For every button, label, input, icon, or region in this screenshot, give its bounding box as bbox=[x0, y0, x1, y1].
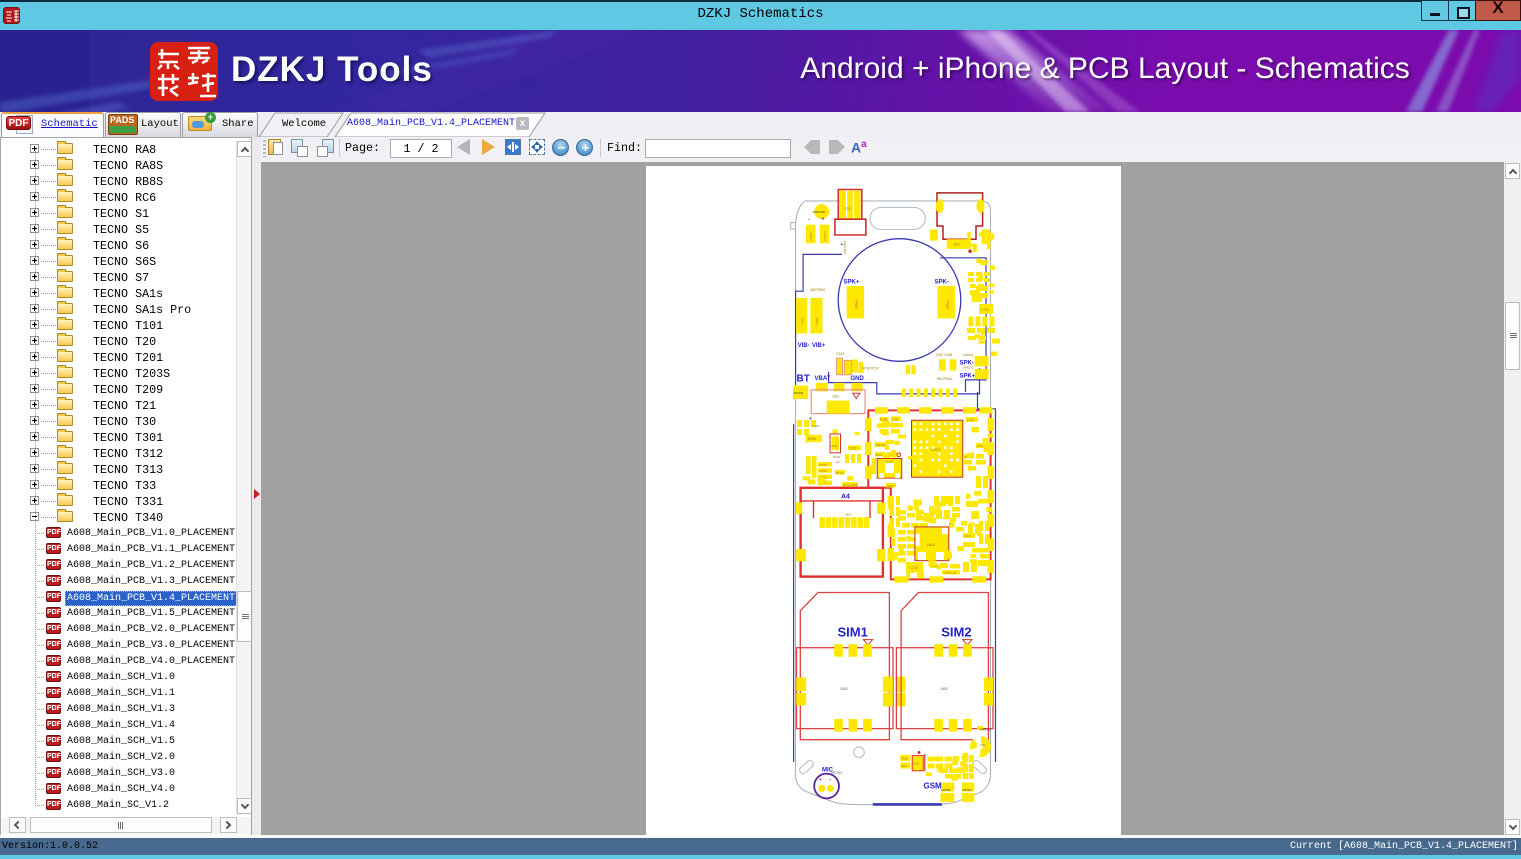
svg-text:MARK502: MARK502 bbox=[980, 729, 992, 732]
svg-text:ANT100: ANT100 bbox=[962, 788, 972, 792]
svg-text:-: - bbox=[830, 777, 832, 783]
svg-text:SIM1: SIM1 bbox=[838, 625, 868, 640]
svg-text:LA: LA bbox=[836, 460, 840, 464]
svg-text:SPK+: SPK+ bbox=[854, 298, 859, 309]
svg-text:-: - bbox=[808, 217, 810, 223]
svg-text:TP302: TP302 bbox=[801, 317, 805, 326]
svg-text:ANT403: ANT403 bbox=[794, 391, 804, 395]
svg-text:SPK+: SPK+ bbox=[960, 374, 976, 380]
svg-text:TP703+: TP703+ bbox=[823, 230, 827, 241]
svg-text:R301: R301 bbox=[833, 455, 841, 459]
svg-text:SPK502: SPK502 bbox=[963, 353, 974, 357]
svg-text:U101: U101 bbox=[886, 459, 894, 463]
svg-text:MIC1501: MIC1501 bbox=[832, 771, 843, 775]
svg-text:SPK+: SPK+ bbox=[844, 279, 860, 285]
svg-text:GND: GND bbox=[851, 376, 865, 382]
svg-text:C807R802: C807R802 bbox=[843, 240, 847, 254]
svg-text:MARKTOP: MARKTOP bbox=[813, 210, 826, 214]
svg-text:BT: BT bbox=[797, 374, 810, 385]
svg-text:J500: J500 bbox=[980, 743, 986, 747]
svg-text:VIB-: VIB- bbox=[798, 343, 810, 349]
svg-text:C332: C332 bbox=[891, 418, 899, 422]
svg-text:C319: C319 bbox=[836, 352, 844, 356]
svg-text:C401: C401 bbox=[812, 424, 820, 428]
svg-text:SPK501: SPK501 bbox=[963, 366, 974, 370]
svg-text:U401: U401 bbox=[927, 543, 935, 547]
svg-text:SIM2: SIM2 bbox=[941, 625, 971, 640]
svg-text:GSM: GSM bbox=[924, 782, 943, 791]
svg-text:IT01: IT01 bbox=[977, 444, 983, 448]
svg-text:C604: C604 bbox=[876, 453, 883, 457]
svg-text:A4: A4 bbox=[841, 494, 850, 501]
svg-text:C317: C317 bbox=[964, 534, 972, 538]
svg-text:R738 R737: R738 R737 bbox=[863, 367, 879, 371]
svg-text:J702: J702 bbox=[844, 207, 851, 211]
svg-text:R705: R705 bbox=[820, 469, 828, 473]
svg-text:R601: R601 bbox=[887, 484, 895, 488]
svg-text:+: + bbox=[819, 777, 822, 783]
svg-text:J401: J401 bbox=[845, 513, 852, 517]
svg-text:ANT102: ANT102 bbox=[941, 788, 951, 792]
svg-text:+: + bbox=[822, 217, 825, 223]
svg-text:C704: C704 bbox=[981, 308, 989, 312]
svg-text:J201: J201 bbox=[832, 395, 839, 399]
svg-text:VIB+: VIB+ bbox=[812, 343, 826, 349]
svg-text:E401: E401 bbox=[914, 762, 921, 766]
svg-text:R308: R308 bbox=[808, 437, 816, 441]
svg-text:TP704-: TP704- bbox=[809, 231, 813, 241]
svg-text:TP301: TP301 bbox=[815, 317, 819, 326]
svg-text:C807R802: C807R802 bbox=[810, 288, 825, 292]
svg-text:R706: R706 bbox=[820, 463, 828, 467]
svg-text:J701: J701 bbox=[953, 243, 960, 247]
svg-text:R727: R727 bbox=[836, 471, 844, 475]
svg-text:E407: E407 bbox=[901, 764, 908, 768]
svg-text:VBAT: VBAT bbox=[815, 376, 831, 382]
svg-text:C302: C302 bbox=[849, 446, 857, 450]
svg-text:U302: U302 bbox=[831, 444, 839, 448]
svg-text:C567 C508: C567 C508 bbox=[936, 353, 952, 357]
svg-text:SPK-: SPK- bbox=[945, 299, 950, 309]
svg-text:SPK-: SPK- bbox=[935, 279, 949, 285]
svg-text:SW401: SW401 bbox=[876, 443, 886, 447]
svg-text:R517R516: R517R516 bbox=[937, 377, 952, 381]
svg-text:C705 L30: C705 L30 bbox=[944, 571, 957, 575]
svg-text:R710 C805: R710 C805 bbox=[843, 483, 858, 487]
svg-text:J402: J402 bbox=[940, 687, 948, 691]
svg-text:J403: J403 bbox=[840, 687, 848, 691]
svg-text:U201: U201 bbox=[931, 447, 941, 452]
svg-text:C343: C343 bbox=[967, 418, 975, 422]
svg-text:C408: C408 bbox=[901, 757, 908, 761]
